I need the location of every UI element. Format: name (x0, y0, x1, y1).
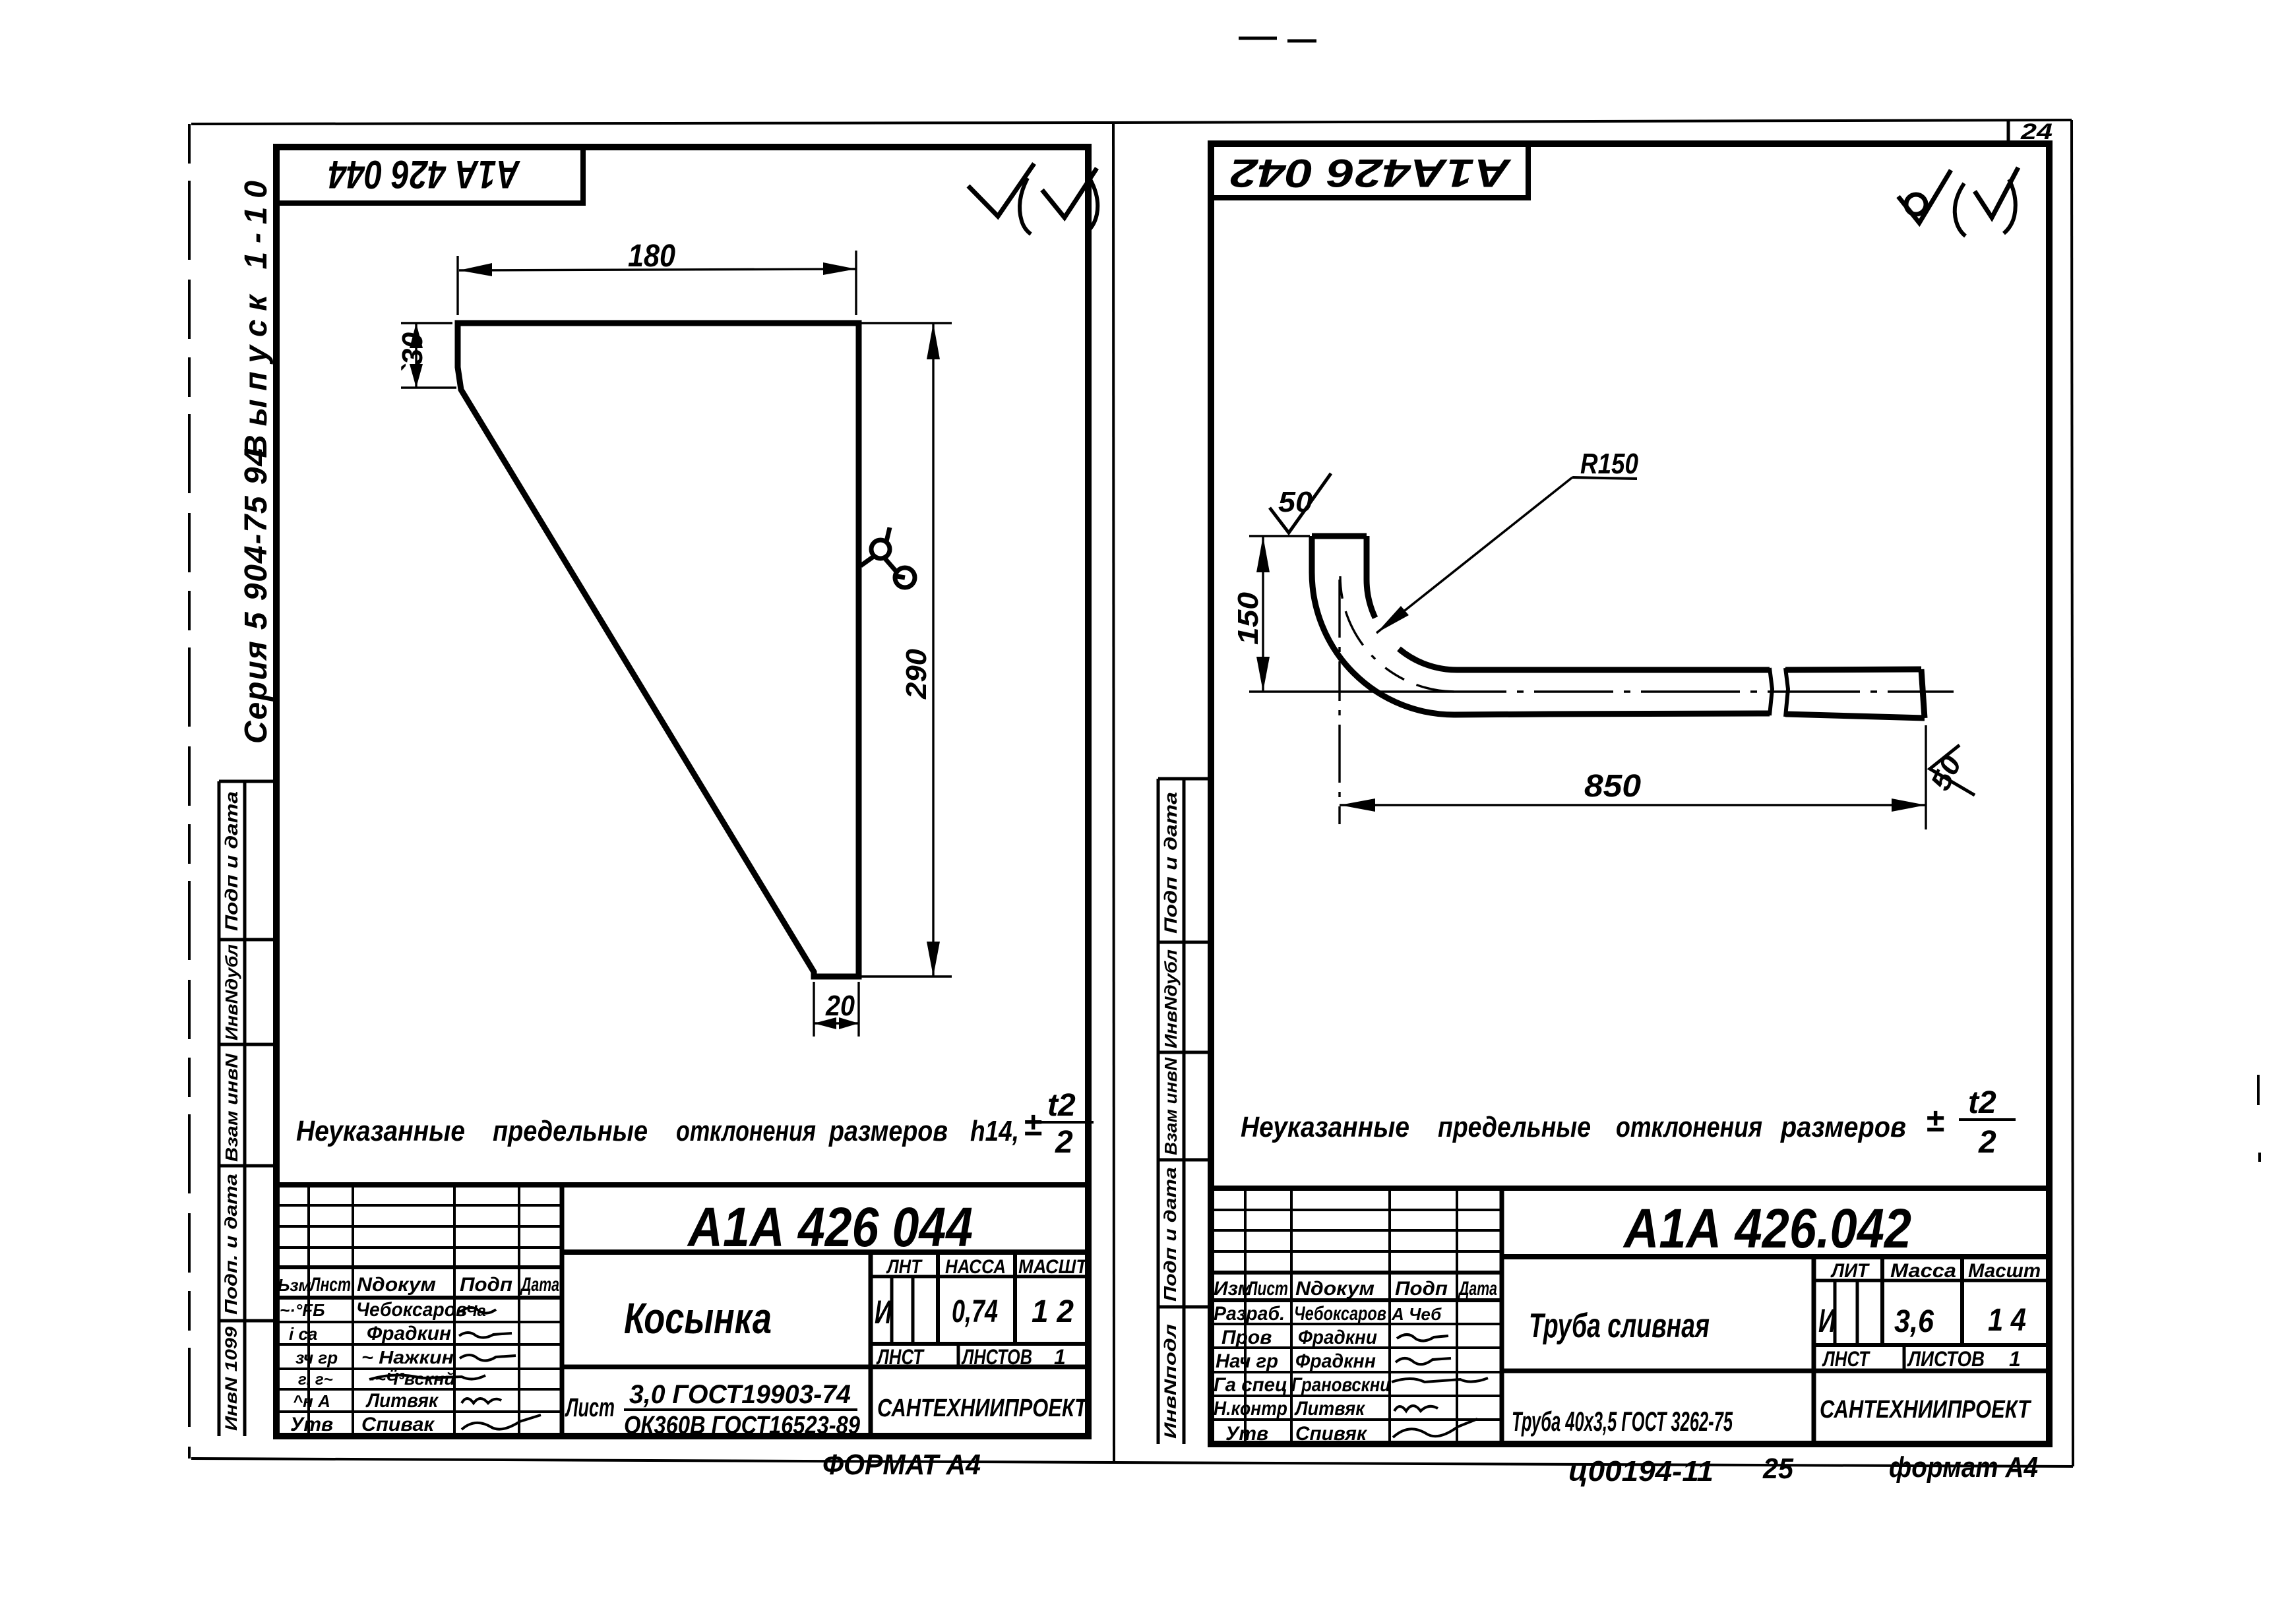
svg-text:~ Нажкин: ~ Нажкин (361, 1347, 454, 1368)
svg-text:ЛНТ: ЛНТ (886, 1256, 923, 1278)
svg-text:0,74: 0,74 (952, 1294, 998, 1329)
svg-text:И: И (1818, 1302, 1836, 1339)
svg-text:1: 1 (2009, 1347, 2021, 1371)
svg-text:Труба сливная: Труба сливная (1529, 1307, 1710, 1345)
svg-text:Утв: Утв (1225, 1423, 1268, 1445)
svg-text:2: 2 (1978, 1125, 1996, 1160)
svg-text:150: 150 (1232, 591, 1264, 645)
svg-text:Серия 5 904-75 94: Серия 5 904-75 94 (239, 448, 274, 744)
svg-text:Литвяк: Литвяк (365, 1390, 439, 1412)
svg-text:Подп и дата: Подп и дата (222, 791, 241, 931)
svg-text:А1А426 042: А1А426 042 (1230, 151, 1512, 195)
svg-text:А Чеб: А Чеб (1391, 1304, 1442, 1324)
svg-text:Чебоксаров: Чебоксаров (356, 1299, 467, 1321)
svg-text:И: И (875, 1294, 892, 1331)
svg-text:Га спец: Га спец (1214, 1374, 1287, 1396)
svg-text:~·°FБ: ~·°FБ (280, 1300, 325, 1320)
svg-text:ЛИТ: ЛИТ (1830, 1260, 1870, 1282)
svg-text:ИнвNдубл: ИнвNдубл (222, 944, 241, 1040)
svg-text:50: 50 (1278, 486, 1313, 518)
svg-text:НАССА: НАССА (945, 1256, 1006, 1278)
svg-text:±: ± (1926, 1102, 1944, 1139)
svg-text:Лист: Лист (565, 1393, 615, 1422)
svg-text:Изм: Изм (1214, 1278, 1252, 1300)
svg-text:^н А: ^н А (293, 1391, 330, 1411)
svg-text:290: 290 (900, 648, 933, 700)
svg-text:Подп и дата: Подп и дата (1161, 792, 1181, 934)
svg-text:Фрадкнн: Фрадкнн (1295, 1350, 1376, 1372)
svg-text:Спивяк: Спивяк (1295, 1423, 1368, 1445)
svg-text:24: 24 (2020, 119, 2053, 144)
svg-text:850: 850 (1584, 769, 1641, 804)
svg-text:САНТЕХНИИПРОЕКТ: САНТЕХНИИПРОЕКТ (1820, 1396, 2031, 1424)
svg-text:А1А 426.042: А1А 426.042 (1622, 1197, 1911, 1259)
svg-text:Неуказанные: Неуказанные (1241, 1111, 1409, 1143)
svg-text:ЛНСТ: ЛНСТ (876, 1345, 925, 1369)
svg-text:Масса: Масса (1890, 1260, 1956, 1282)
svg-text:25: 25 (1762, 1453, 1793, 1485)
svg-text:Косынка: Косынка (624, 1294, 772, 1342)
svg-text:Нач гр: Нач гр (1216, 1350, 1278, 1372)
svg-text:Утв: Утв (290, 1414, 333, 1435)
svg-text:ФОРМАТ А4: ФОРМАТ А4 (822, 1449, 981, 1481)
svg-text:±: ± (1024, 1106, 1042, 1143)
svg-text:Подп и дата: Подп и дата (1160, 1167, 1180, 1302)
svg-text:отклонения: отклонения (676, 1115, 816, 1147)
svg-text:Ьзм: Ьзм (278, 1275, 311, 1295)
svg-text:Труба 40х3,5 ГОСТ 3262-75: Труба 40х3,5 ГОСТ 3262-75 (1512, 1406, 1733, 1437)
svg-text:·~Ӵ³вскнй: ·~Ӵ³вскнй (369, 1369, 455, 1389)
svg-text:Nдокум: Nдокум (357, 1274, 436, 1296)
svg-text:ц00194-11: ц00194-11 (1568, 1455, 1714, 1488)
svg-text:Фрадкин: Фрадкин (367, 1323, 451, 1344)
svg-text:1 4: 1 4 (1988, 1303, 2026, 1338)
svg-text:h14,: h14, (970, 1115, 1019, 1147)
svg-text:3,0 ГОСТ19903-74: 3,0 ГОСТ19903-74 (629, 1380, 851, 1409)
svg-text:ИнвNподл: ИнвNподл (1161, 1323, 1180, 1439)
svg-text:формат А4: формат А4 (1889, 1451, 2038, 1484)
svg-text:Грановскни: Грановскни (1291, 1374, 1390, 1396)
svg-text:180: 180 (628, 239, 675, 274)
svg-text:Nдокум: Nдокум (1295, 1278, 1375, 1300)
svg-text:2: 2 (1055, 1125, 1073, 1160)
svg-text:Спивак: Спивак (361, 1414, 435, 1435)
svg-text:Лнст: Лнст (309, 1274, 351, 1296)
svg-text:отклонения: отклонения (1616, 1111, 1762, 1143)
svg-text:Дата: Дата (520, 1274, 559, 1296)
svg-text:Подп. и дата: Подп. и дата (221, 1174, 241, 1315)
svg-text:г. г~: г. г~ (298, 1371, 333, 1389)
svg-text:Литвяк: Литвяк (1294, 1398, 1365, 1420)
svg-text:t2: t2 (1047, 1088, 1076, 1123)
svg-text:ИнвN 1099: ИнвN 1099 (222, 1327, 241, 1431)
svg-text:А1А 426 044: А1А 426 044 (687, 1196, 973, 1258)
svg-text:предельные: предельные (1438, 1111, 1591, 1143)
svg-text:Н.контр: Н.контр (1214, 1398, 1287, 1420)
svg-text:Лист: Лист (1246, 1278, 1288, 1300)
svg-text:Масшт: Масшт (1968, 1260, 2041, 1282)
svg-text:1 2: 1 2 (1032, 1294, 1074, 1329)
svg-text:зч гр: зч гр (295, 1348, 338, 1368)
svg-text:і са: і са (289, 1324, 317, 1344)
svg-text:Неуказанные: Неуказанные (296, 1115, 465, 1147)
svg-text:МАСШТ: МАСШТ (1018, 1256, 1088, 1278)
svg-text:Взам инвN: Взам инвN (1161, 1057, 1181, 1155)
svg-text:R150: R150 (1580, 448, 1638, 480)
svg-text:ЛНСТ: ЛНСТ (1822, 1347, 1870, 1371)
svg-text:Разраб.: Разраб. (1214, 1303, 1285, 1325)
svg-text:ОК360В ГОСТ16523-89: ОК360В ГОСТ16523-89 (624, 1412, 860, 1439)
svg-text:3,6: 3,6 (1894, 1304, 1934, 1339)
svg-text:ИнвNдубл: ИнвNдубл (1161, 949, 1181, 1048)
svg-text:предельные: предельные (493, 1115, 648, 1147)
svg-text:Подп: Подп (460, 1274, 512, 1296)
svg-text:`30: `30 (396, 332, 429, 375)
svg-text:Подп: Подп (1395, 1278, 1448, 1300)
svg-text:ЛНСТОВ: ЛНСТОВ (961, 1345, 1032, 1369)
svg-text:Взам инвN: Взам инвN (222, 1053, 241, 1162)
svg-text:размеров: размеров (828, 1115, 948, 1147)
svg-text:Дата: Дата (1458, 1278, 1497, 1300)
svg-text:Чебоксаров: Чебоксаров (1294, 1303, 1386, 1325)
svg-text:Пров: Пров (1221, 1327, 1272, 1348)
svg-text:САНТЕХНИИПРОЕКТ: САНТЕХНИИПРОЕКТ (877, 1395, 1088, 1422)
svg-text:20: 20 (825, 990, 855, 1022)
svg-text:А1А 426 044: А1А 426 044 (328, 152, 521, 196)
svg-text:t2: t2 (1968, 1085, 1996, 1120)
svg-text:размеров: размеров (1780, 1111, 1906, 1143)
svg-text:Фрадкни: Фрадкни (1298, 1327, 1377, 1348)
svg-text:ЛИСТОВ: ЛИСТОВ (1907, 1347, 1985, 1371)
svg-text:1: 1 (1054, 1345, 1066, 1369)
